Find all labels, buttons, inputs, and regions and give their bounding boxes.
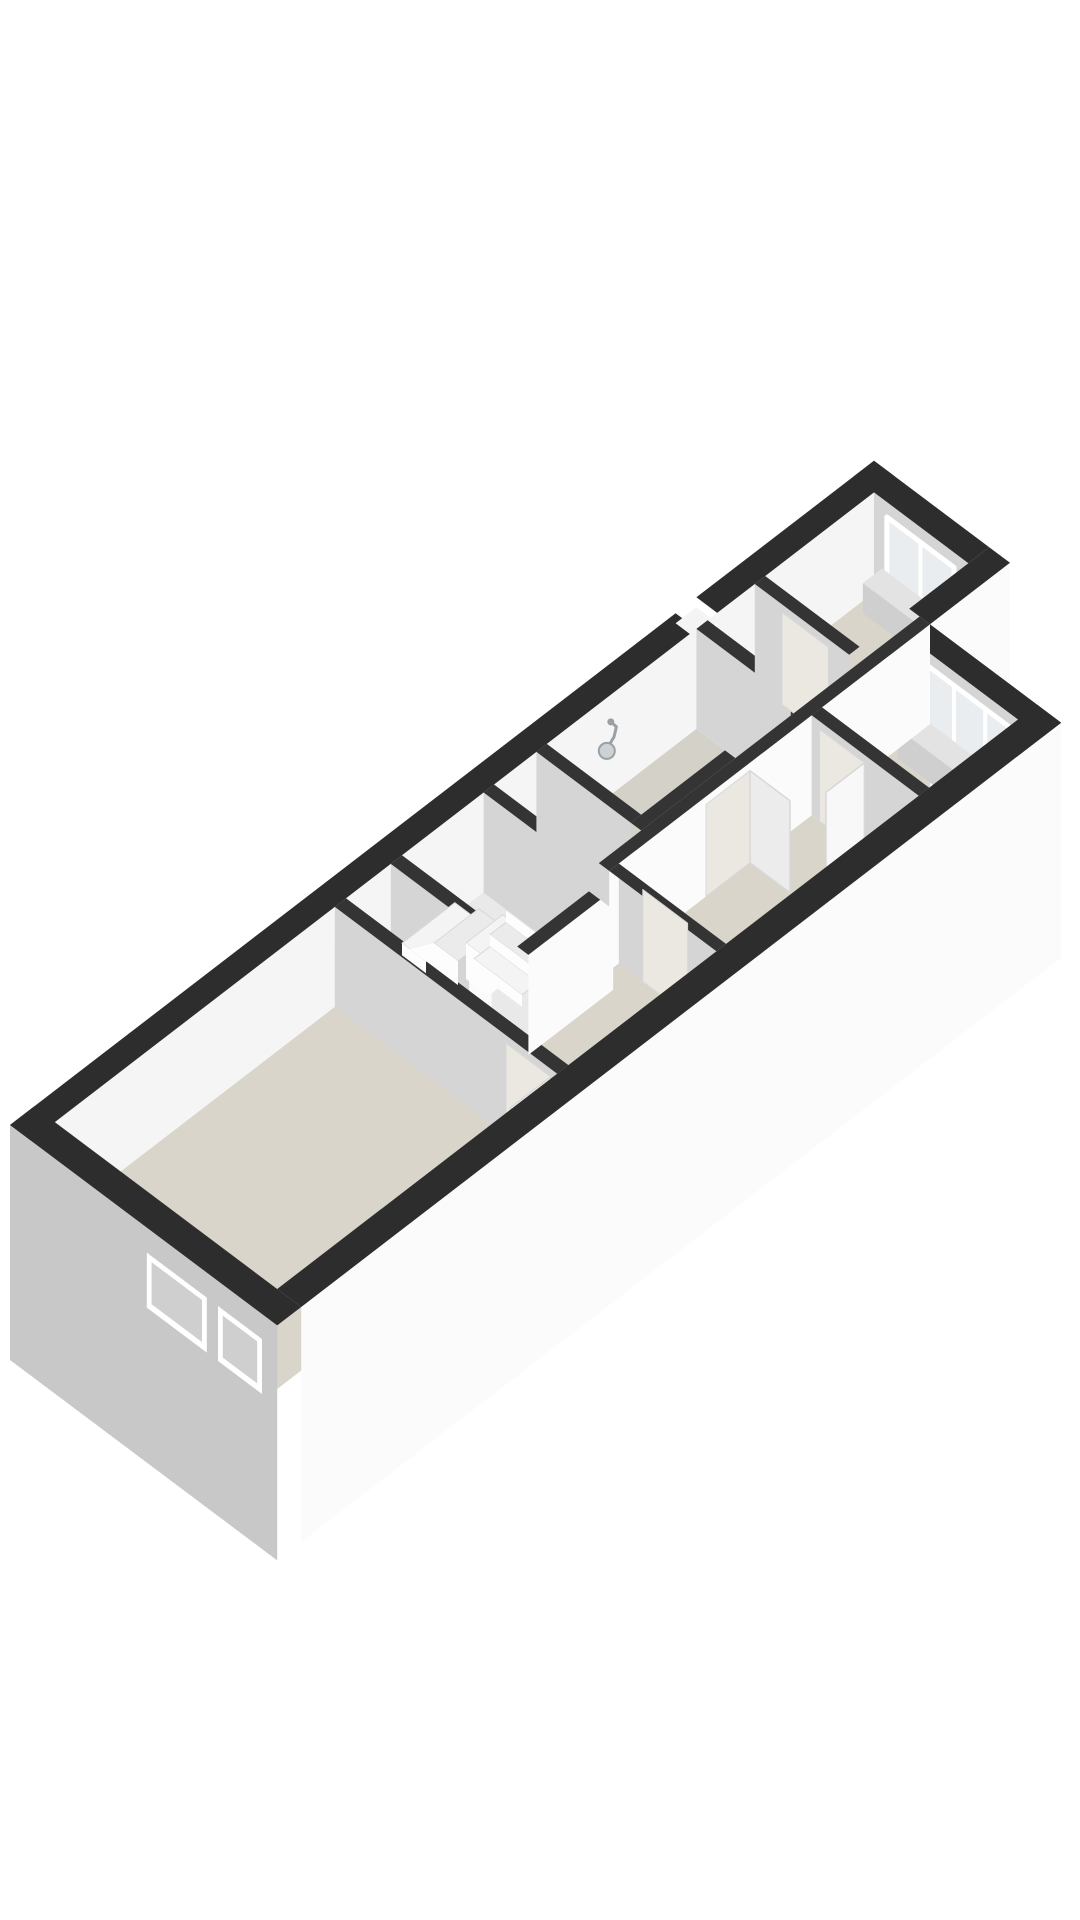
shower-head-icon [599,743,615,759]
page [0,0,1080,1920]
floorplan-3d-view [0,0,1080,1920]
floorplan-3d-svg [0,0,1080,1920]
